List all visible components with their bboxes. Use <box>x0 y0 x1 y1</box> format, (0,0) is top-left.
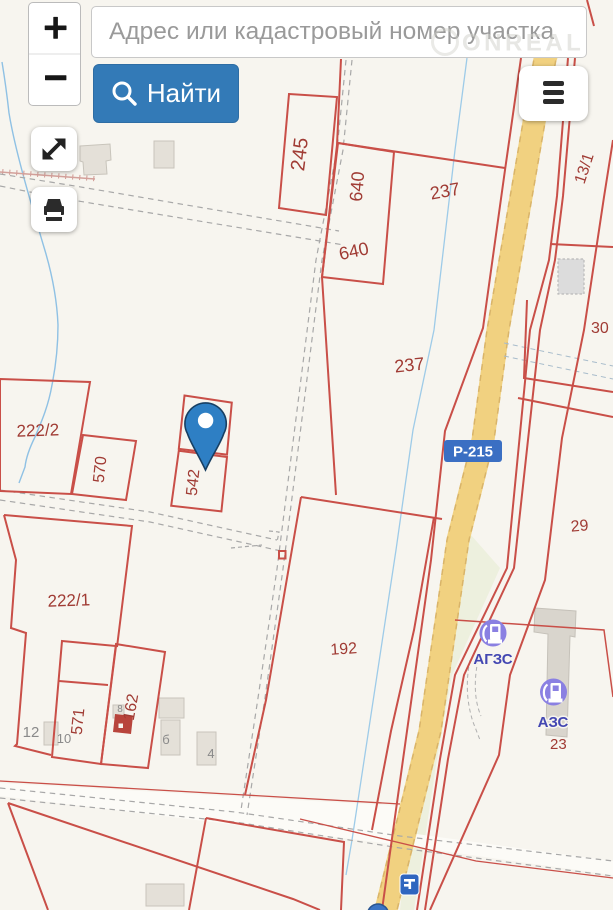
svg-text:542: 542 <box>184 468 204 496</box>
svg-text:571: 571 <box>69 707 89 735</box>
svg-text:б: б <box>162 732 169 747</box>
svg-text:АГЗС: АГЗС <box>473 651 512 668</box>
svg-text:222/1: 222/1 <box>47 590 90 610</box>
svg-text:237: 237 <box>393 354 425 377</box>
svg-text:640: 640 <box>346 171 369 203</box>
svg-text:30: 30 <box>591 320 609 337</box>
svg-text:4: 4 <box>207 746 214 761</box>
svg-text:Р-215: Р-215 <box>453 444 493 461</box>
svg-text:570: 570 <box>91 455 111 483</box>
svg-text:12: 12 <box>23 724 40 741</box>
svg-text:222/2: 222/2 <box>16 420 59 440</box>
svg-text:192: 192 <box>330 640 358 659</box>
svg-text:10: 10 <box>57 731 71 746</box>
svg-text:ONREAL: ONREAL <box>462 30 584 57</box>
svg-text:8: 8 <box>117 704 123 715</box>
svg-text:АЗС: АЗС <box>538 714 569 731</box>
svg-text:23: 23 <box>550 736 567 753</box>
svg-text:245: 245 <box>287 136 313 172</box>
svg-text:29: 29 <box>570 517 589 535</box>
